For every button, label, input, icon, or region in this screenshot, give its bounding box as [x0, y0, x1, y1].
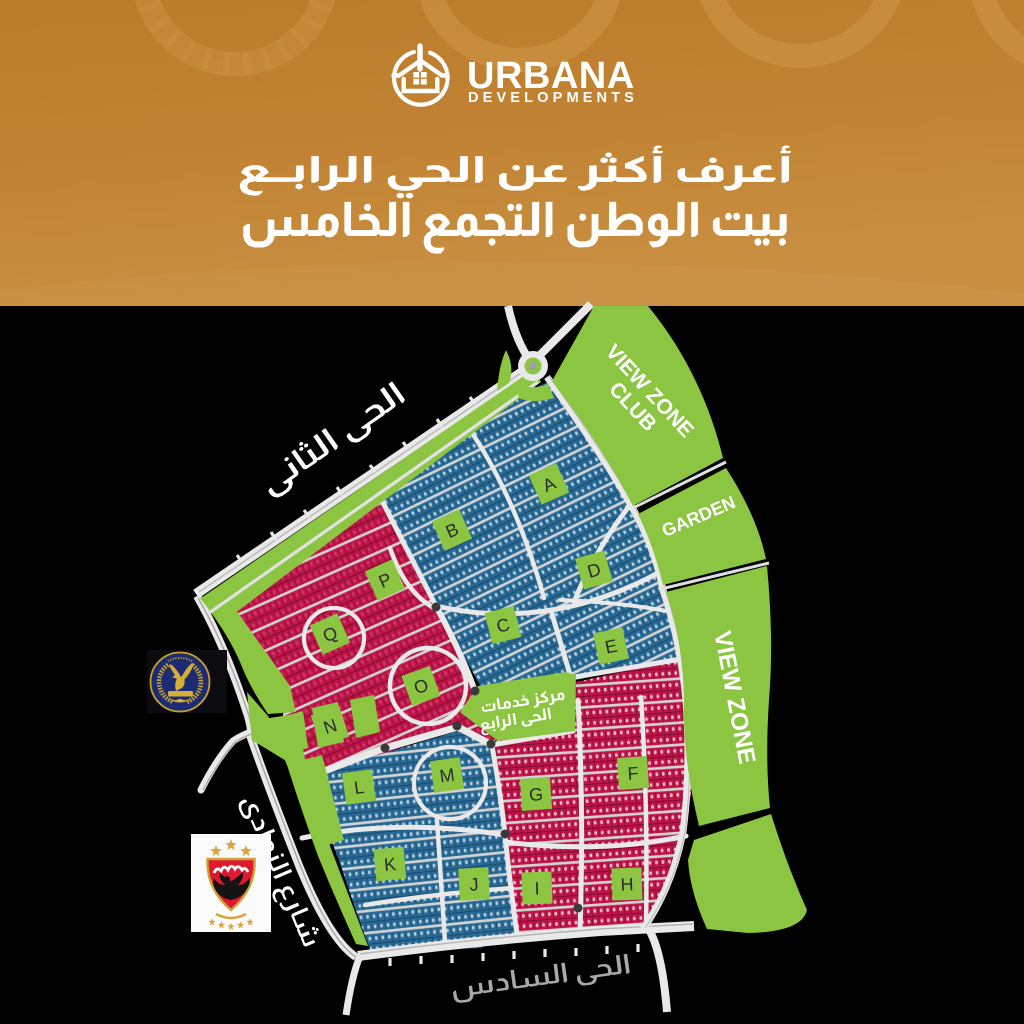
svg-text:I: I: [534, 878, 540, 898]
svg-text:H: H: [620, 874, 634, 894]
svg-text:K: K: [383, 854, 397, 875]
svg-text:DEVELOPMENTS: DEVELOPMENTS: [468, 90, 638, 106]
svg-text:F: F: [627, 763, 639, 784]
svg-text:G: G: [528, 784, 543, 805]
svg-text:M: M: [438, 765, 456, 787]
svg-text:J: J: [469, 874, 479, 894]
